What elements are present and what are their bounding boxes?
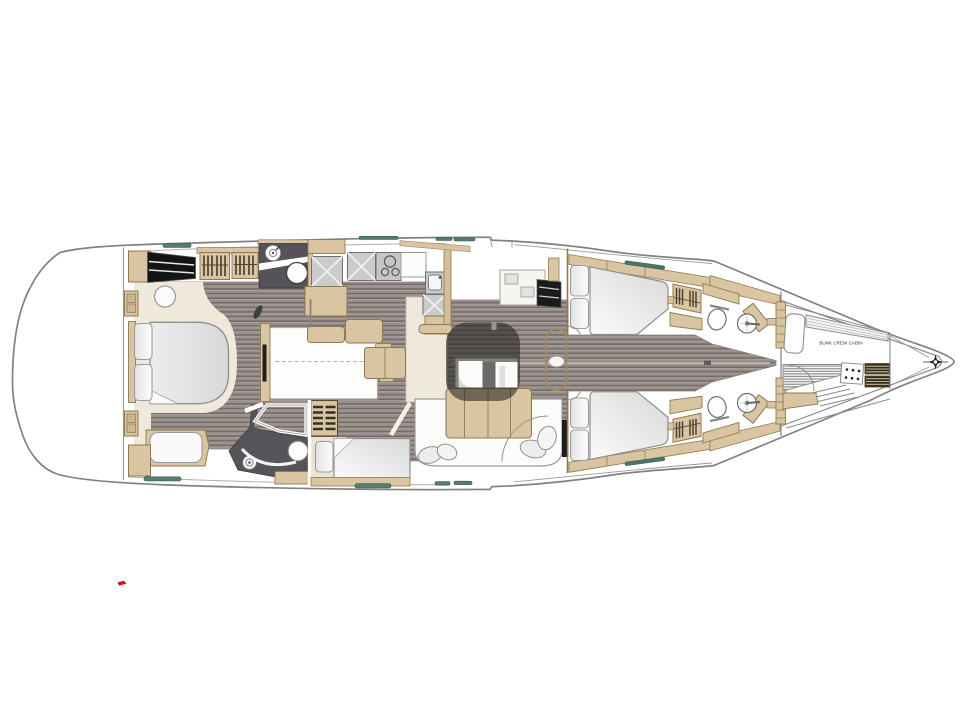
- svg-text:BUNK CREW CABIN: BUNK CREW CABIN: [819, 340, 862, 345]
